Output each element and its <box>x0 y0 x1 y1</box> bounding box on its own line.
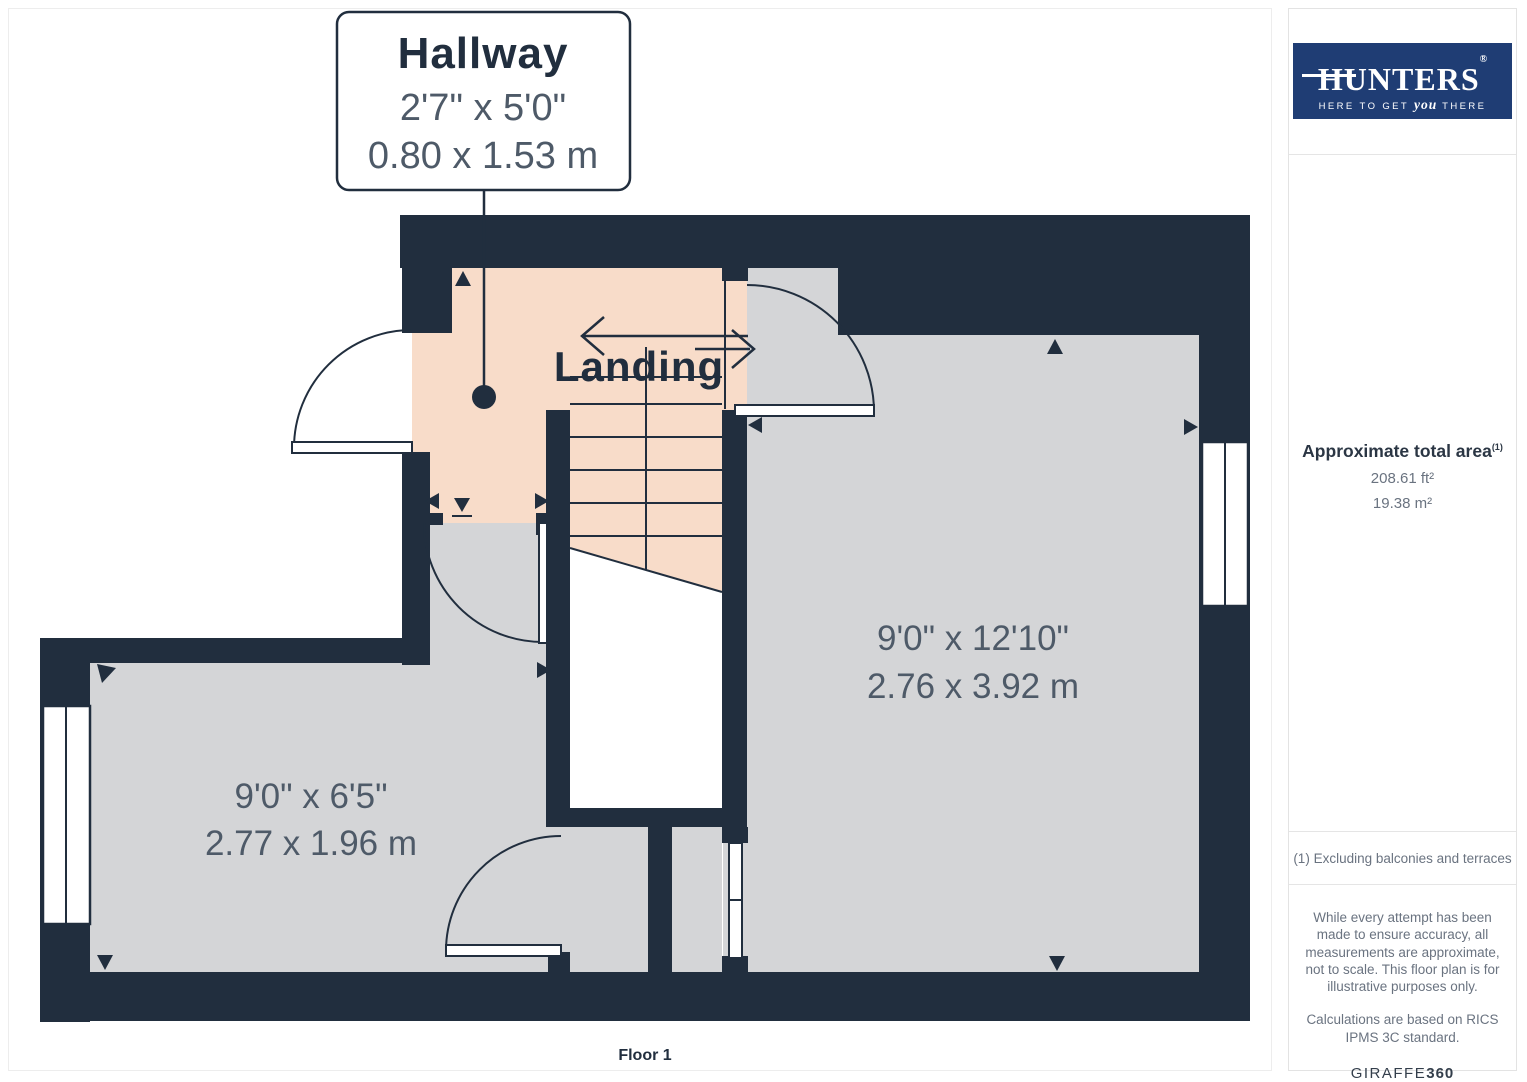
area-title-text: Approximate total area <box>1302 441 1492 461</box>
room-right-dim-imperial: 9'0" x 12'10" <box>877 619 1069 658</box>
legal-section: While every attempt has been made to ens… <box>1289 885 1516 1082</box>
logo-section: HUNTERS® HERE TO GET you THERE <box>1289 9 1516 155</box>
brand-text: HUNTERS <box>1318 61 1480 97</box>
disclaimer-text: While every attempt has been made to ens… <box>1304 909 1502 995</box>
under-stairs-cells-floor <box>573 827 722 972</box>
tagline-post: THERE <box>1442 101 1486 112</box>
tagline-emph: you <box>1414 97 1437 112</box>
door-leaf-room-left <box>446 945 561 956</box>
door-leaf-exterior <box>292 442 412 453</box>
callout-dim-imperial: 2'7" x 5'0" <box>400 87 566 129</box>
credit-brand: GIRAFFE <box>1351 1065 1427 1082</box>
room-left-dim-metric: 2.77 x 1.96 m <box>205 824 417 863</box>
area-metric: 19.38 m² <box>1289 495 1516 512</box>
callout-anchor-dot <box>472 385 496 409</box>
floor-label: Floor 1 <box>618 1047 671 1064</box>
floor-plan-drawing: Hallway 2'7" x 5'0" 0.80 x 1.53 m Landin… <box>0 0 1286 1080</box>
doorway-floor <box>723 281 747 410</box>
door-leaf-vestibule <box>539 523 547 643</box>
standard-text: Calculations are based on RICS IPMS 3C s… <box>1304 1011 1502 1046</box>
landing-label: Landing <box>554 343 724 390</box>
hallway-floor <box>452 266 548 333</box>
giraffe360-credit: GIRAFFE360 <box>1289 1065 1516 1082</box>
registered-mark: ® <box>1480 54 1487 65</box>
room-right-dim-metric: 2.76 x 3.92 m <box>867 667 1079 706</box>
area-section: Approximate total area(1) 208.61 ft² 19.… <box>1289 441 1516 512</box>
door-arc-exterior <box>294 330 412 448</box>
tagline-pre: HERE TO GET <box>1319 101 1409 112</box>
hunters-logo: HUNTERS® HERE TO GET you THERE <box>1293 43 1512 119</box>
door-leaf-room-right <box>735 405 874 416</box>
callout-room-name: Hallway <box>398 29 569 78</box>
brand-tagline: HERE TO GET you THERE <box>1293 97 1512 113</box>
footnote: (1) Excluding balconies and terraces <box>1289 831 1516 885</box>
hallway-floor <box>422 452 548 523</box>
room-left-dim-imperial: 9'0" x 6'5" <box>234 777 387 816</box>
credit-suffix: 360 <box>1426 1065 1454 1082</box>
sidebar: HUNTERS® HERE TO GET you THERE Approxima… <box>1288 8 1517 1071</box>
area-imperial: 208.61 ft² <box>1289 470 1516 487</box>
callout-dim-metric: 0.80 x 1.53 m <box>368 135 598 177</box>
logo-strike-line-icon <box>1302 74 1356 77</box>
area-title-footnote-marker: (1) <box>1492 442 1503 452</box>
area-title: Approximate total area(1) <box>1289 441 1516 462</box>
